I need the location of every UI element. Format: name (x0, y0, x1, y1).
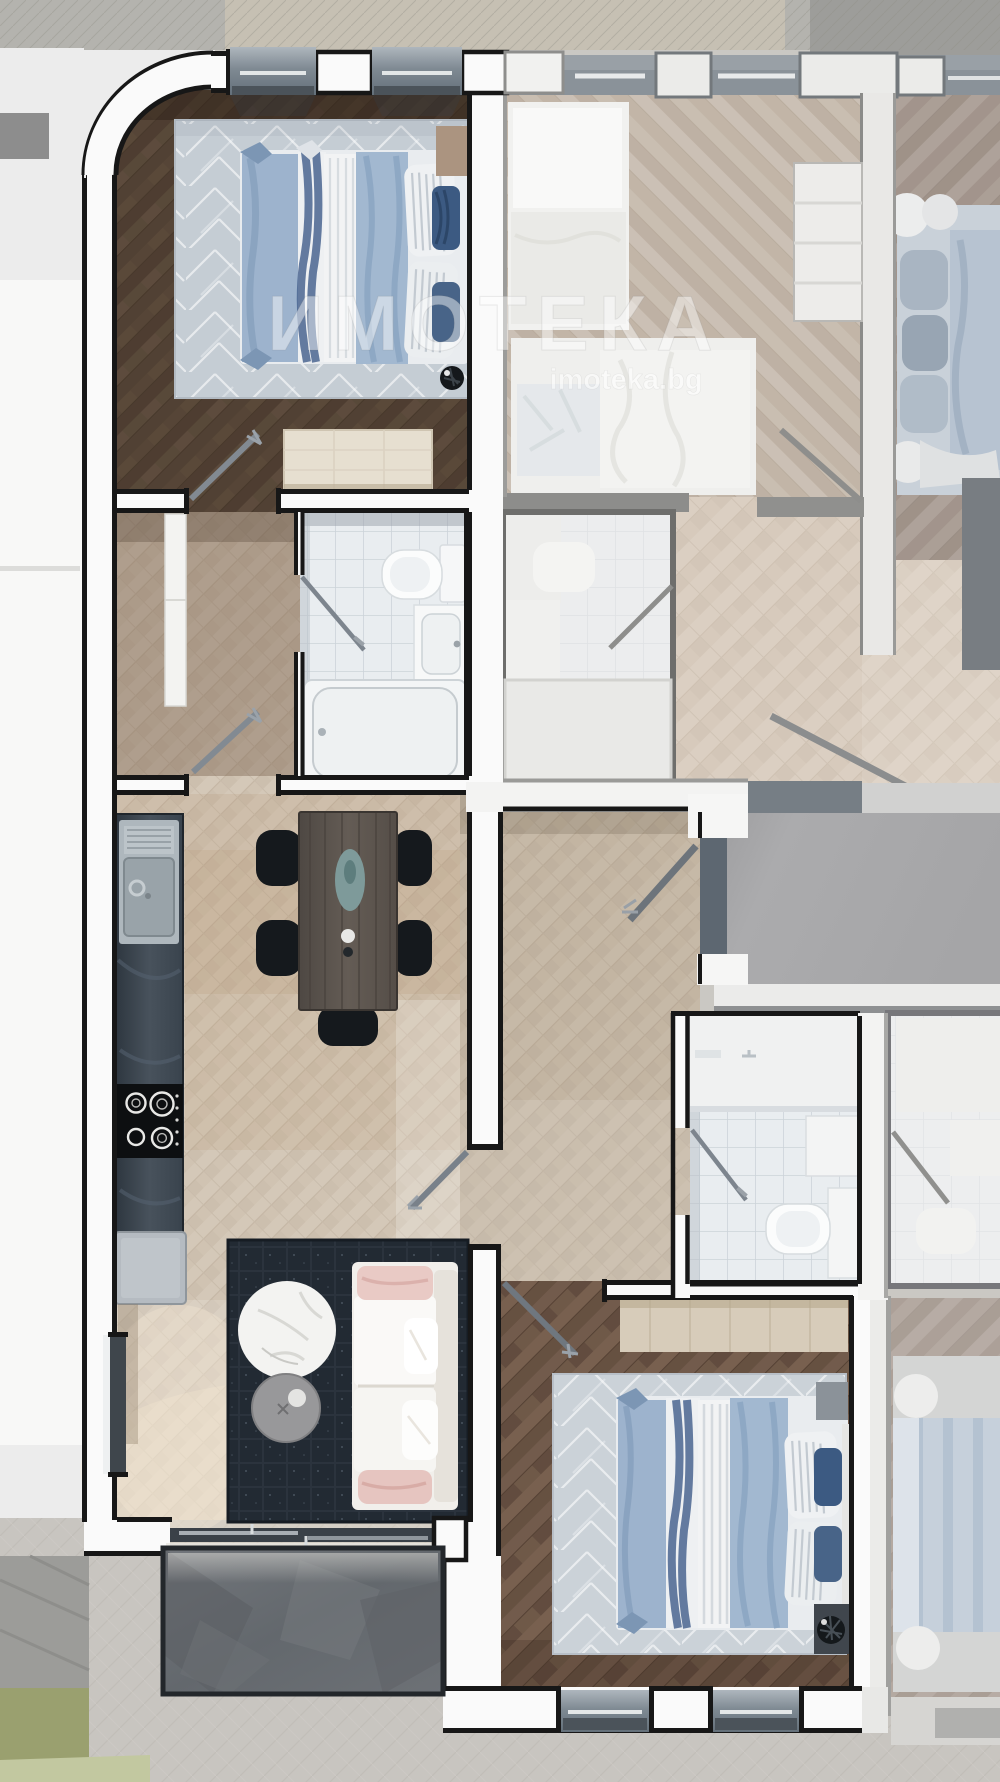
svg-text:ИМОТЕКА: ИМОТЕКА (267, 279, 722, 367)
svg-text:imoteka.bg: imoteka.bg (549, 364, 702, 396)
